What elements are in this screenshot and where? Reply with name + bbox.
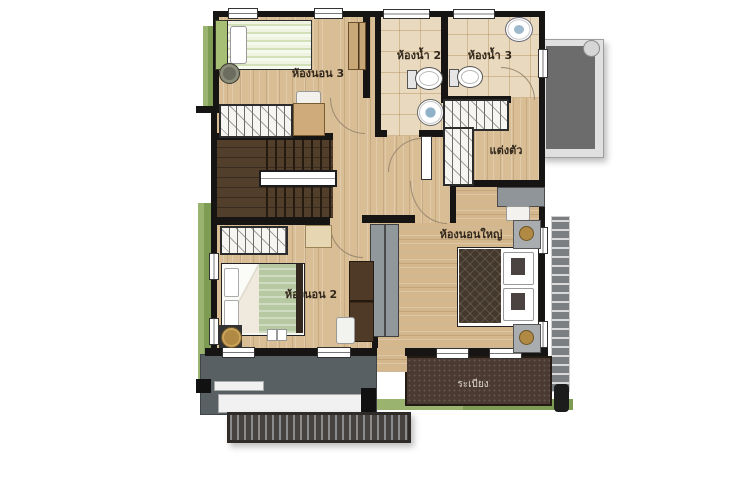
master-cabinet (370, 224, 399, 337)
wall-left-jog (196, 106, 219, 113)
stair-handrail (259, 170, 337, 187)
wall-master-top-left (362, 215, 415, 223)
room-label-bathroom3: ห้องน้ำ 3 (461, 50, 519, 62)
roof-finial-knob (583, 40, 600, 57)
awning-roof (227, 412, 411, 443)
side-ledge-right (551, 216, 570, 392)
ledge-cap-right (554, 384, 569, 412)
window-bathroom2 (383, 9, 430, 19)
roof-top-right (546, 46, 595, 149)
roof-ledge-small (214, 381, 264, 391)
wall-bathroom2-left (375, 17, 381, 136)
window-bedroom2-bottom-1 (222, 347, 255, 358)
window-left-1 (209, 253, 219, 280)
post-bottom-center (361, 388, 376, 415)
bed2-round-table (221, 327, 242, 348)
bath3-sink (505, 17, 533, 42)
window-bathroom3 (453, 9, 495, 19)
bed2-nightstand (305, 225, 332, 248)
bed2-closet (220, 226, 288, 255)
bed2-chair (336, 317, 355, 344)
room-label-bedroom3: ห้องนอน 3 (280, 68, 356, 80)
master-lamp-2 (519, 330, 534, 345)
door-to-roof (538, 49, 548, 78)
master-pillow-1-accent (511, 258, 525, 275)
bed3-pillow (230, 26, 247, 64)
wall-bathroom2-bottom-a (375, 130, 387, 137)
window-top-2 (314, 8, 343, 19)
room-label-bathroom2: ห้องน้ำ 2 (390, 50, 448, 62)
door-leaf-bathroom2 (421, 136, 432, 180)
bed3-shelf (348, 22, 366, 70)
room-label-master-bedroom: ห้องนอนใหญ่ (428, 229, 514, 241)
bed3-desk (293, 103, 325, 136)
window-master-bottom-1 (436, 348, 469, 359)
floor-plan-canvas: ห้องนอน 3 ห้องน้ำ 2 ห้องน้ำ 3 แต่งตัว ห้… (0, 0, 750, 500)
bed3-wardrobe (219, 104, 293, 138)
master-pillow-2-accent (511, 293, 525, 310)
master-bed-duvet (459, 249, 501, 323)
bath2-sink (417, 99, 444, 126)
dressing-closet-left (443, 127, 474, 186)
bed2-slipper-1 (267, 329, 277, 341)
window-bedroom2-bottom-2 (317, 347, 351, 358)
bed3-stool (219, 63, 240, 84)
wall-bedroom2-top (213, 217, 330, 225)
balcony-doorway-floor (377, 348, 407, 372)
master-lamp-1 (519, 226, 534, 241)
wall-dressing-jog (450, 180, 456, 223)
bed2-slipper-2 (277, 329, 287, 341)
bath2-toilet-bowl (415, 67, 443, 90)
room-label-bedroom2: ห้องนอน 2 (278, 289, 344, 301)
room-label-balcony: ระเบียง (443, 379, 503, 390)
window-top-1 (228, 8, 258, 19)
bath3-toilet-bowl (457, 66, 483, 88)
bed2-pillow-1 (224, 268, 239, 297)
master-stool (506, 206, 530, 221)
window-left-2 (209, 318, 219, 345)
master-dresser (497, 187, 545, 207)
room-label-dressing: แต่งตัว (481, 145, 531, 157)
roof-ledge-large (218, 394, 366, 413)
post-bottom-left (196, 379, 211, 393)
